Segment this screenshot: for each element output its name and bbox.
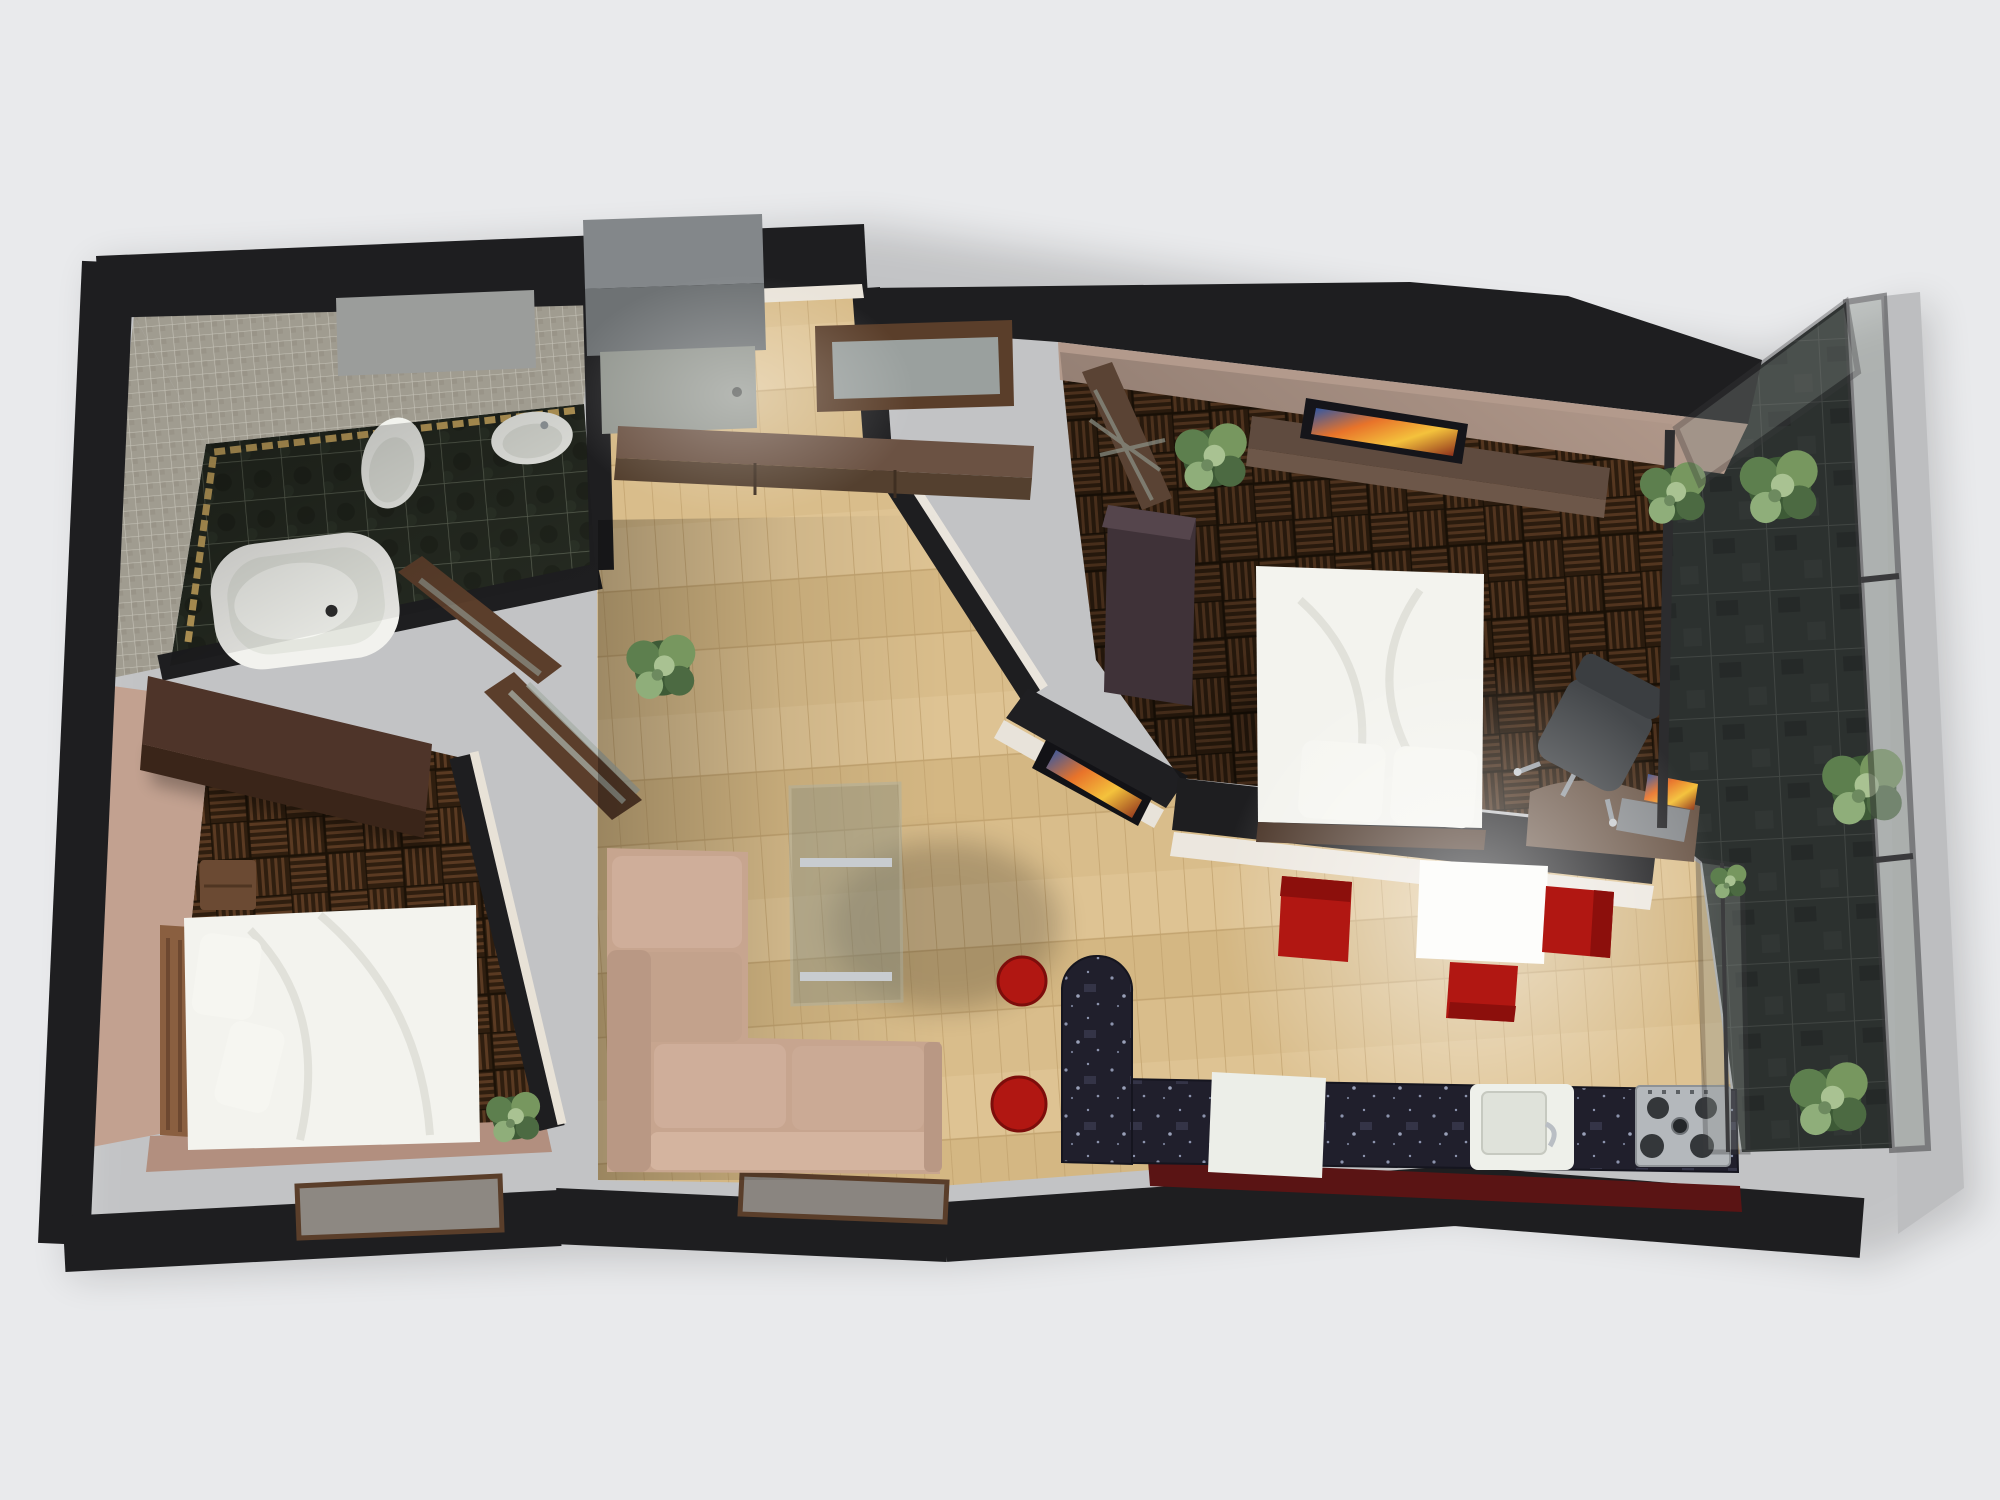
sofa-arm-east	[924, 1042, 942, 1172]
table-rail	[800, 858, 892, 867]
floorplan-canvas	[0, 0, 2000, 1500]
glass-top	[790, 783, 902, 1005]
white-cabinet	[1208, 1072, 1326, 1178]
table-rail	[800, 972, 892, 981]
dining-table	[1416, 860, 1548, 964]
pillow	[190, 932, 263, 1022]
bay-window-living	[740, 1174, 947, 1222]
exterior-slab-top	[336, 290, 536, 376]
kitchen-sink	[1470, 1084, 1574, 1170]
sofa-arm-west	[607, 950, 651, 1172]
coffee-table	[790, 783, 902, 1005]
plant-bedroom-left	[486, 1092, 540, 1142]
bar-counter	[1062, 956, 1132, 1164]
kitchen-balcony-glass	[1698, 860, 1748, 1152]
floorplan-render	[0, 0, 2000, 1500]
plant-balcony	[1740, 450, 1818, 523]
red-stool	[998, 957, 1046, 1005]
plant-bedroom-right	[1175, 423, 1247, 490]
sofa-back-cushion	[792, 1046, 924, 1130]
bay-window-bedroom-left	[297, 1176, 502, 1238]
chair-back-edge	[1590, 890, 1614, 958]
plant-balcony	[1790, 1062, 1868, 1135]
plant-balcony	[1710, 865, 1746, 899]
plant-hall	[626, 635, 695, 699]
red-stool	[992, 1077, 1046, 1131]
hall-light-glow	[565, 275, 915, 515]
sofa-cushion	[612, 856, 742, 948]
sofa-seat-front	[650, 1132, 932, 1170]
sofa-back-cushion	[654, 1044, 786, 1128]
